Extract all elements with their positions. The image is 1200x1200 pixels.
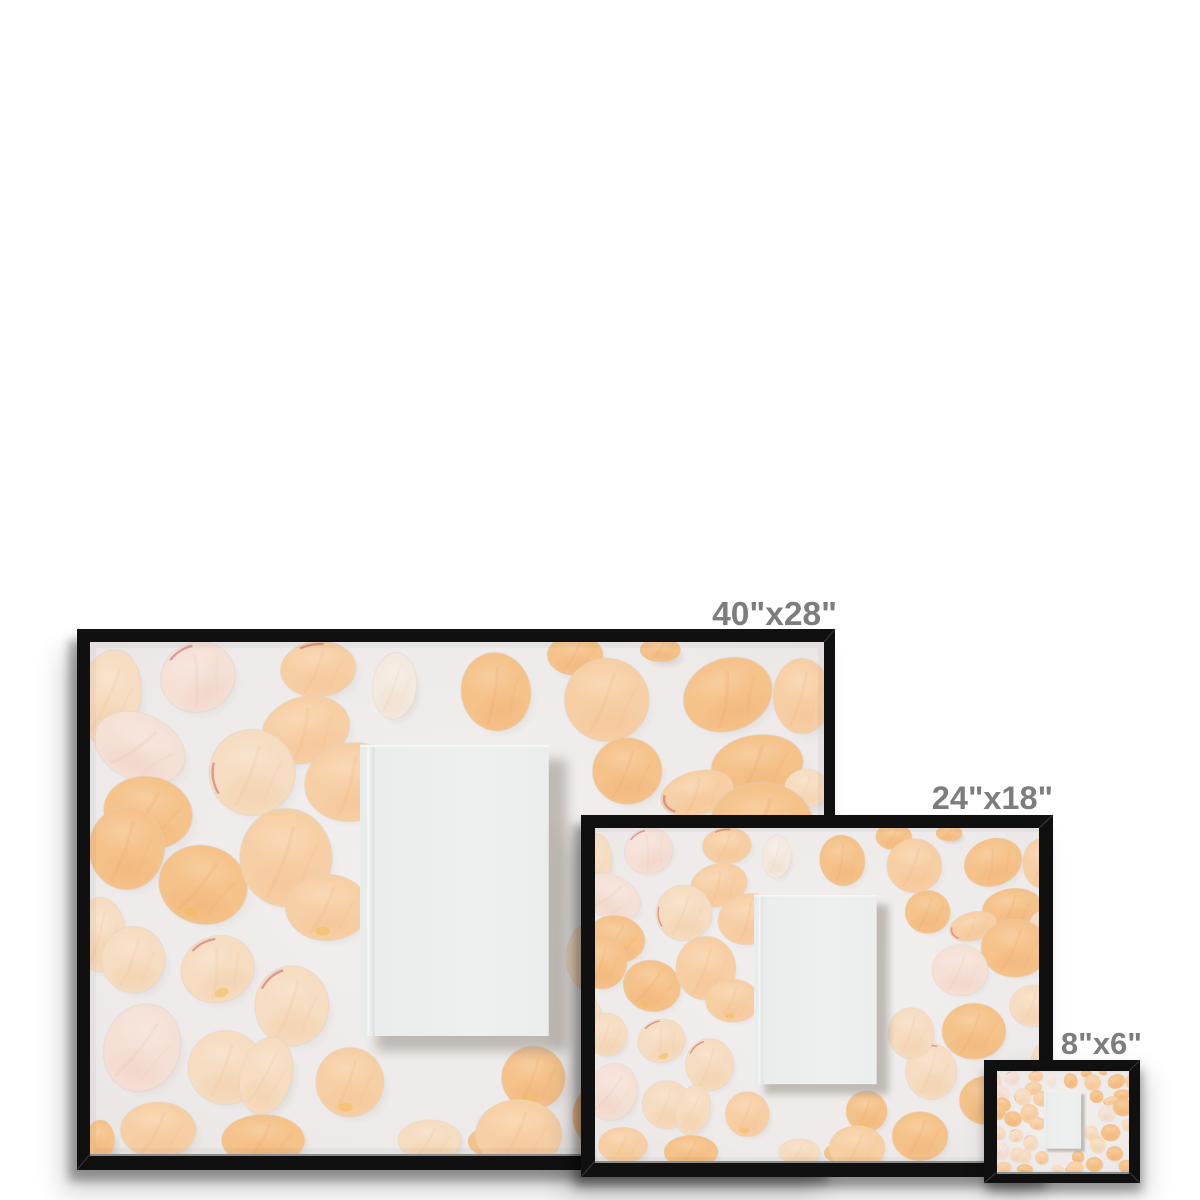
svg-text:8"x6": 8"x6" (1061, 1026, 1142, 1061)
svg-text:40"x28": 40"x28" (712, 596, 837, 633)
svg-text:24"x18": 24"x18" (932, 780, 1053, 816)
